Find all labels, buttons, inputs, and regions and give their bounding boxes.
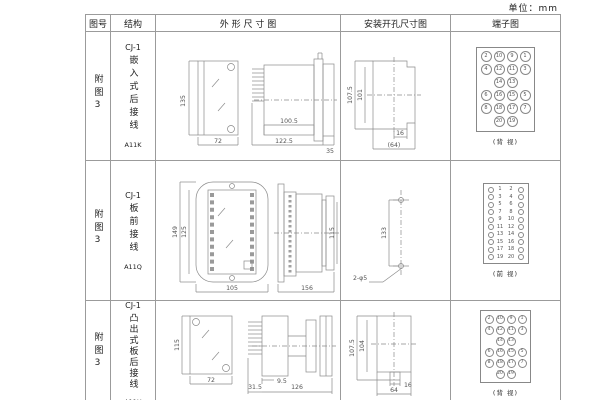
fig-no-cell: 附图3 <box>86 161 111 301</box>
pin-number: 14 <box>496 80 502 85</box>
terminal-pin: 8 <box>485 359 494 368</box>
datasheet-page: 单位：mm 图号 结构 外 形 尺 寸 图 安装开孔尺寸图 端子图 附图3 CJ… <box>0 0 600 400</box>
header-fig-no: 图号 <box>86 15 111 32</box>
pin-number: 5 <box>523 93 526 98</box>
dim-label: 64 <box>390 387 398 394</box>
terminal-pin: 12 <box>496 326 505 335</box>
pin-number: 16 <box>507 240 516 245</box>
outline-drawing: 115 72 9.5 <box>156 308 339 400</box>
table-row: 附图3 CJ-1 板前接线 A11Q <box>86 161 561 301</box>
terminal-strip-row: 3 4 <box>488 194 524 200</box>
mounting-drawing: 107.5 101 16 (64) <box>341 33 449 160</box>
outline-cell: 135 72 100.5 <box>156 32 341 161</box>
terminal-pin: 5 <box>518 348 527 357</box>
terminal-pin: 12 <box>494 64 505 75</box>
terminal-pin: 7 <box>518 359 527 368</box>
header-outline: 外 形 尺 寸 图 <box>156 15 341 32</box>
terminal-pin: 16 <box>496 348 505 357</box>
view-label: (背 视) <box>493 136 518 146</box>
terminal-pin <box>488 254 494 260</box>
terminal-pin: 20 <box>496 370 505 379</box>
pin-number: 11 <box>509 67 515 72</box>
terminal-pin: 19 <box>507 116 518 127</box>
code-label: A11K <box>111 141 155 149</box>
mounting-cell: 107.5 101 16 (64) <box>341 32 451 161</box>
terminal-pin <box>488 194 494 200</box>
header-structure: 结构 <box>111 15 156 32</box>
code-label: A11Q <box>111 263 155 271</box>
terminal-pin <box>518 254 524 260</box>
dim-label: 107.5 <box>349 339 356 357</box>
dim-label: 156 <box>301 285 313 292</box>
dim-label: 122.5 <box>275 138 293 145</box>
fig-no-label: 附图3 <box>92 209 105 249</box>
terminal-pin <box>488 209 494 215</box>
pin-number: 19 <box>509 119 515 124</box>
fig-no-label: 附图3 <box>92 332 105 372</box>
header-terminal: 端子图 <box>451 15 561 32</box>
structure-label: 嵌入式后接线 <box>127 55 140 133</box>
terminal-diagram: 2109141211314136161558181772019 <box>480 51 531 128</box>
terminal-pin: 13 <box>507 337 516 346</box>
mounting-drawing: 107.5 104 16 64 <box>341 308 449 400</box>
view-label: (前 视) <box>493 268 518 278</box>
side-view: 9.5 31.5 126 <box>248 316 336 394</box>
pin-number: 15 <box>508 350 514 355</box>
dim-label: 35 <box>326 148 334 155</box>
terminal-pin <box>518 187 524 193</box>
structure-cell: CJ-1 嵌入式后接线 A11K <box>111 32 156 161</box>
structure-cell: CJ-1 凸出式板后接线 A11H <box>111 301 156 400</box>
pin-number: 19 <box>508 372 514 377</box>
terminal-pin: 6 <box>481 90 492 101</box>
pin-number: 6 <box>507 202 516 207</box>
pin-number: 15 <box>496 240 505 245</box>
pin-number: 3 <box>496 195 505 200</box>
terminal-pin: 15 <box>507 348 516 357</box>
terminal-pin <box>488 187 494 193</box>
unit-label: 单位：mm <box>508 1 558 14</box>
hole-spec-label: 2-φ5 <box>353 275 367 282</box>
model-label: CJ-1 <box>111 43 155 52</box>
pin-number: 6 <box>484 93 487 98</box>
pin-number: 10 <box>507 217 516 222</box>
dim-label: 125 <box>181 226 188 238</box>
terminal-pin: 10 <box>494 51 505 62</box>
terminal-pin <box>518 232 524 238</box>
terminal-pin: 1 <box>520 51 531 62</box>
pin-number: 11 <box>496 225 505 230</box>
structure-cell: CJ-1 板前接线 A11Q <box>111 161 156 301</box>
pin-number: 4 <box>488 328 491 333</box>
pin-number: 4 <box>507 195 516 200</box>
dimension-table: 图号 结构 外 形 尺 寸 图 安装开孔尺寸图 端子图 附图3 CJ-1 嵌入式… <box>85 14 561 400</box>
pin-number: 18 <box>496 106 502 111</box>
pin-number: 3 <box>521 328 524 333</box>
terminal-strip-row: 11 12 <box>488 224 524 230</box>
terminal-pin: 8 <box>481 103 492 114</box>
terminal-pin <box>488 202 494 208</box>
pin-number: 14 <box>507 232 516 237</box>
terminal-diagram: 2109141211314136161558181772019 <box>484 314 527 379</box>
outline-drawing: 149 125 105 <box>156 162 339 300</box>
terminal-pin: 4 <box>481 64 492 75</box>
front-view: 135 72 <box>180 61 238 145</box>
terminal-pin <box>518 247 524 253</box>
terminal-cell: 1 2 3 4 <box>451 161 561 301</box>
pin-number: 7 <box>521 361 524 366</box>
terminal-pin: 10 <box>496 315 505 324</box>
terminal-pin: 15 <box>507 90 518 101</box>
terminal-strip-row: 13 14 <box>488 232 524 238</box>
terminal-pin: 16 <box>494 90 505 101</box>
pin-number: 1 <box>496 187 505 192</box>
dim-label: 126 <box>291 384 303 391</box>
dim-label: 16 <box>396 130 404 137</box>
pin-number: 5 <box>521 350 524 355</box>
terminal-pin <box>518 239 524 245</box>
terminal-pin: 2 <box>485 315 494 324</box>
terminal-pin: 3 <box>520 64 531 75</box>
pin-number: 18 <box>497 361 503 366</box>
pin-number: 10 <box>497 317 503 322</box>
fig-no-label: 附图3 <box>92 74 105 114</box>
fig-no-cell: 附图3 <box>86 301 111 400</box>
terminal-box: 2109141211314136161558181772019 <box>476 47 535 132</box>
pin-number: 16 <box>497 350 503 355</box>
table-header-row: 图号 结构 外 形 尺 寸 图 安装开孔尺寸图 端子图 <box>86 15 561 32</box>
terminal-pin: 18 <box>494 103 505 114</box>
dim-label: 105 <box>226 285 238 292</box>
front-view: 115 72 <box>174 316 232 384</box>
pin-number: 15 <box>509 93 515 98</box>
pin-number: 17 <box>496 247 505 252</box>
dim-label: 72 <box>214 138 222 145</box>
dim-label: 107.5 <box>347 86 354 104</box>
pin-number: 18 <box>507 247 516 252</box>
dim-label: 135 <box>180 95 187 107</box>
header-mounting: 安装开孔尺寸图 <box>341 15 451 32</box>
pin-number: 13 <box>496 232 505 237</box>
view-label: (背 视) <box>493 387 518 397</box>
pin-number: 2 <box>488 317 491 322</box>
terminal-pin: 17 <box>507 359 516 368</box>
model-label: CJ-1 <box>111 301 155 310</box>
terminal-pin <box>518 202 524 208</box>
dim-label: 72 <box>207 377 215 384</box>
pin-number: 9 <box>510 54 513 59</box>
outline-cell: 115 72 9.5 <box>156 301 341 400</box>
terminal-pin <box>488 224 494 230</box>
terminal-pin <box>518 224 524 230</box>
side-view: 100.5 122.5 35 <box>252 53 337 155</box>
pin-number: 9 <box>510 317 513 322</box>
pin-number: 11 <box>508 328 514 333</box>
pin-number: 16 <box>496 93 502 98</box>
front-view: 149 125 105 <box>172 182 268 292</box>
pin-number: 9 <box>496 217 505 222</box>
pin-number: 6 <box>488 350 491 355</box>
dim-label: 133 <box>381 227 388 239</box>
pin-number: 17 <box>508 361 514 366</box>
terminal-pin: 11 <box>507 64 518 75</box>
pin-number: 20 <box>496 119 502 124</box>
dim-label: 115 <box>174 339 181 351</box>
mounting-drawing: 133 2-φ5 <box>341 162 449 300</box>
dim-label: 100.5 <box>280 118 298 125</box>
table-row: 附图3 CJ-1 嵌入式后接线 A11K 135 7 <box>86 32 561 161</box>
pin-number: 2 <box>507 187 516 192</box>
pin-number: 7 <box>523 106 526 111</box>
dim-label: 104 <box>359 340 366 352</box>
pin-number: 2 <box>484 54 487 59</box>
terminal-pin: 13 <box>507 77 518 88</box>
terminal-box: 1 2 3 4 <box>483 183 529 265</box>
terminal-pin: 5 <box>520 90 531 101</box>
terminal-pin <box>488 247 494 253</box>
terminal-pin: 3 <box>518 326 527 335</box>
outline-cell: 149 125 105 <box>156 161 341 301</box>
fig-no-cell: 附图3 <box>86 32 111 161</box>
terminal-strip-row: 7 8 <box>488 209 524 215</box>
pin-number: 8 <box>488 361 491 366</box>
terminal-strip-row: 19 20 <box>488 254 524 260</box>
terminal-pin: 14 <box>496 337 505 346</box>
pin-number: 20 <box>497 372 503 377</box>
terminal-pin: 18 <box>496 359 505 368</box>
mounting-cell: 133 2-φ5 <box>341 161 451 301</box>
pin-number: 4 <box>484 67 487 72</box>
terminal-pin <box>518 209 524 215</box>
terminal-pin: 9 <box>507 51 518 62</box>
terminal-pin: 6 <box>485 348 494 357</box>
terminal-strip-row: 17 18 <box>488 247 524 253</box>
dim-label: 115 <box>329 227 336 239</box>
terminal-pin <box>518 217 524 223</box>
dim-label: 149 <box>172 226 179 238</box>
pin-number: 13 <box>509 80 515 85</box>
pin-number: 8 <box>507 210 516 215</box>
pin-number: 3 <box>523 67 526 72</box>
pin-number: 20 <box>507 255 516 260</box>
pin-number: 17 <box>509 106 515 111</box>
terminal-pin: 1 <box>518 315 527 324</box>
terminal-cell: 2109141211314136161558181772019 (背 视) <box>451 32 561 161</box>
terminal-strip-row: 15 16 <box>488 239 524 245</box>
terminal-pin <box>488 239 494 245</box>
terminal-pin: 14 <box>494 77 505 88</box>
side-view: 156 115 <box>274 184 339 292</box>
mounting-cell: 107.5 104 16 64 <box>341 301 451 400</box>
table-row: 附图3 CJ-1 凸出式板后接线 A11H 115 72 <box>86 301 561 400</box>
terminal-cell: 2109141211314136161558181772019 (背 视) <box>451 301 561 400</box>
terminal-pin <box>518 194 524 200</box>
pin-number: 13 <box>508 339 514 344</box>
terminal-box: 2109141211314136161558181772019 <box>480 310 531 383</box>
terminal-strip-row: 5 6 <box>488 202 524 208</box>
terminal-pin: 17 <box>507 103 518 114</box>
terminal-pin: 19 <box>507 370 516 379</box>
pin-number: 12 <box>497 328 503 333</box>
dim-label: 101 <box>357 89 364 101</box>
pin-number: 1 <box>521 317 524 322</box>
terminal-pin: 9 <box>507 315 516 324</box>
terminal-pin: 7 <box>520 103 531 114</box>
terminal-strip-row: 1 2 <box>488 187 524 193</box>
pin-number: 1 <box>523 54 526 59</box>
pin-number: 8 <box>484 106 487 111</box>
pin-number: 19 <box>496 255 505 260</box>
structure-label: 板前接线 <box>127 203 140 255</box>
terminal-pin: 20 <box>494 116 505 127</box>
terminal-pin: 11 <box>507 326 516 335</box>
pin-number: 10 <box>496 54 502 59</box>
terminal-pin: 4 <box>485 326 494 335</box>
pin-number: 5 <box>496 202 505 207</box>
terminal-pin <box>488 217 494 223</box>
terminal-pin <box>488 232 494 238</box>
dim-label: 9.5 <box>277 378 287 385</box>
pin-number: 7 <box>496 210 505 215</box>
outline-drawing: 135 72 100.5 <box>156 33 339 160</box>
structure-label: 凸出式板后接线 <box>127 313 140 390</box>
pin-number: 12 <box>496 67 502 72</box>
pin-number: 14 <box>497 339 503 344</box>
dim-label: 31.5 <box>248 384 262 391</box>
dim-label: (64) <box>388 142 401 149</box>
terminal-pin: 2 <box>481 51 492 62</box>
model-label: CJ-1 <box>111 191 155 200</box>
terminal-strip-row: 9 10 <box>488 217 524 223</box>
pin-number: 12 <box>507 225 516 230</box>
